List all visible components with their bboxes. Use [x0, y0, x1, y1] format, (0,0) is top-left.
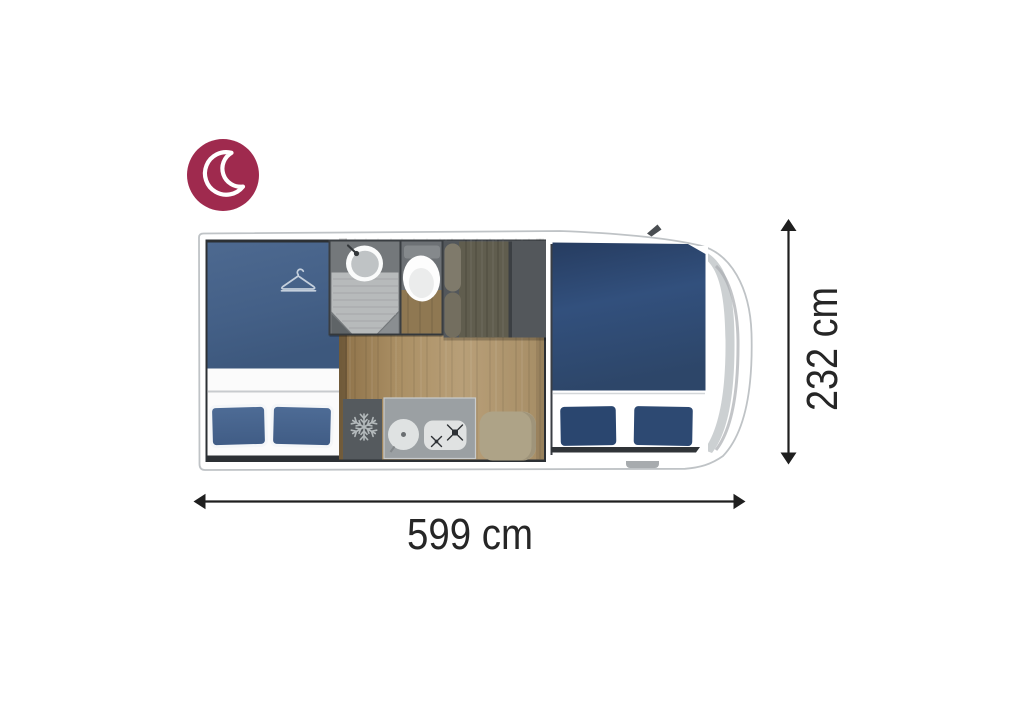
svg-text:599 cm: 599 cm — [407, 510, 533, 559]
svg-text:232 cm: 232 cm — [798, 287, 847, 411]
